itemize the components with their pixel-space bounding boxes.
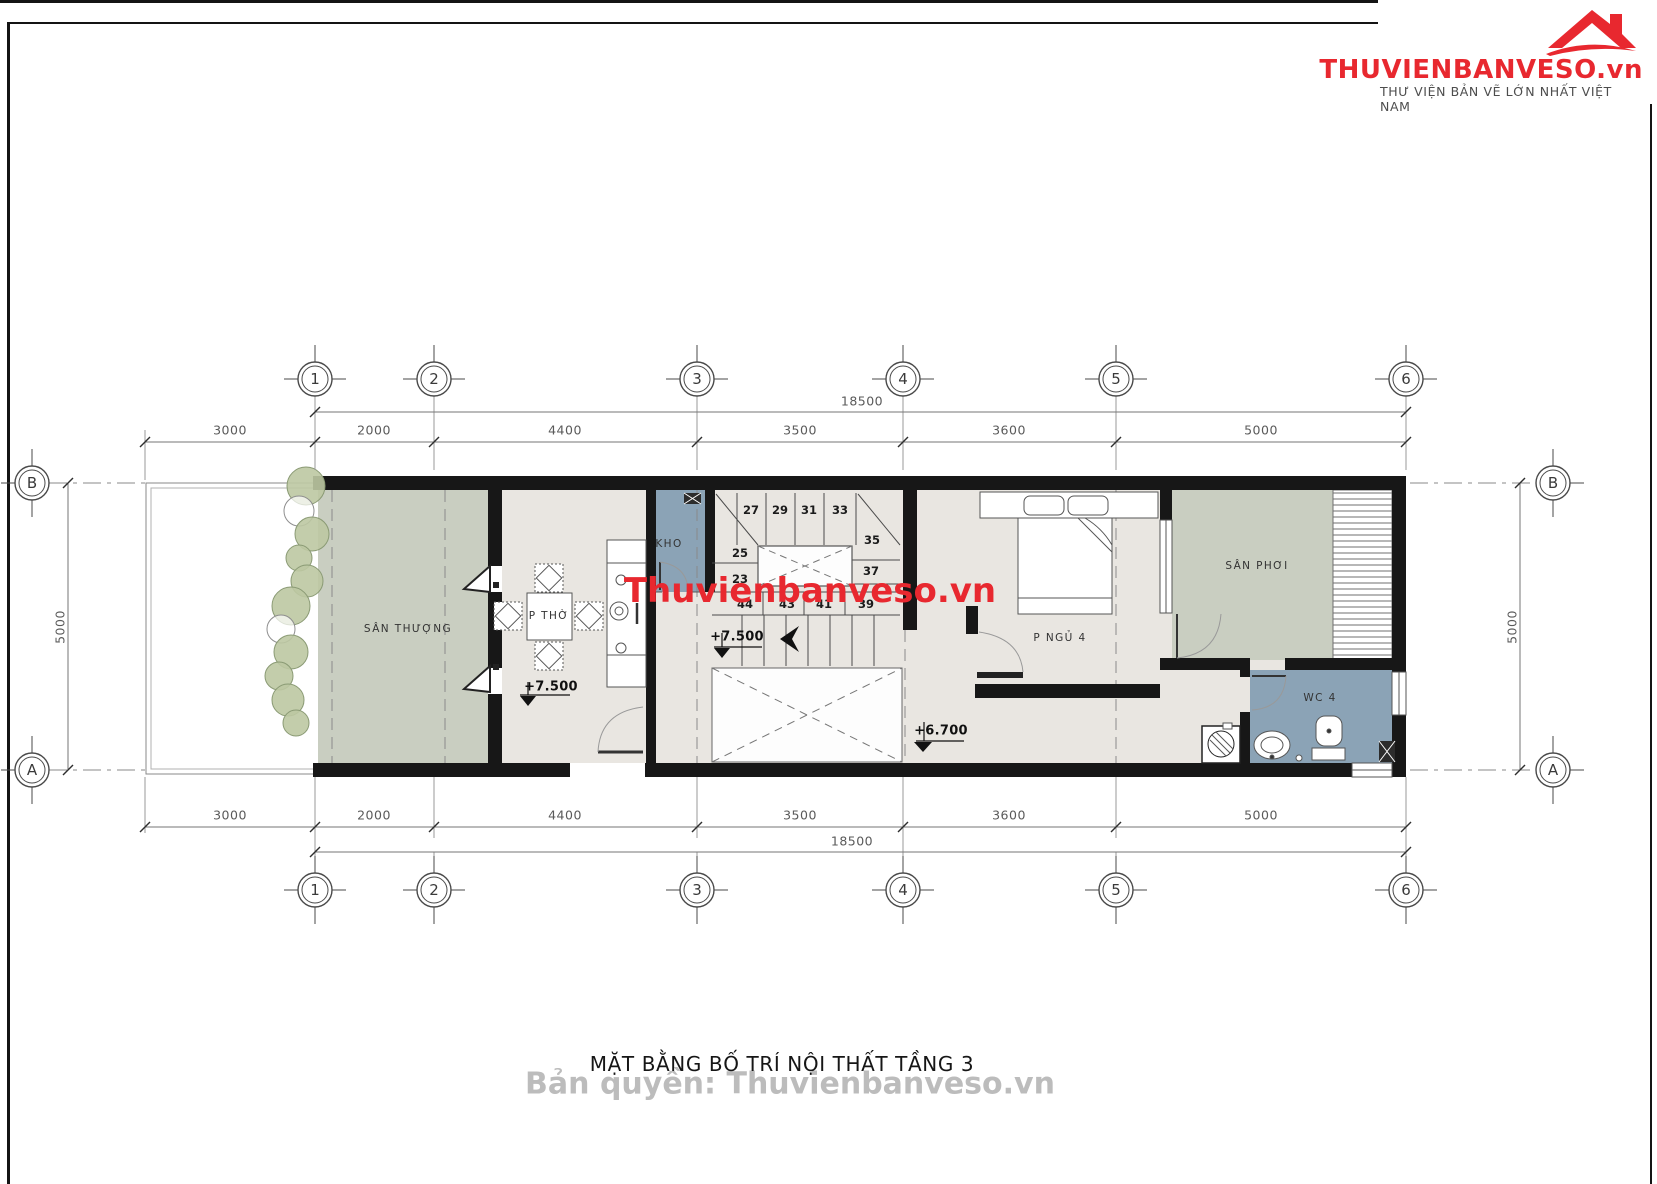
grid-bubble-label: 1 (310, 881, 320, 899)
dim-segment-label: 5000 (1244, 808, 1278, 823)
grid-bubble-label: 4 (898, 881, 908, 899)
dim-segment-label: 2000 (357, 808, 391, 823)
toilet (1312, 716, 1345, 760)
sink (1254, 731, 1290, 759)
dim-segment-label: 4400 (548, 423, 582, 438)
dim-side-label: 5000 (1505, 610, 1520, 644)
stool (535, 642, 563, 670)
center-watermark: Thuvienbanveso.vn (624, 571, 996, 611)
dim-segment-label: 5000 (1244, 423, 1278, 438)
washing-machine (1202, 723, 1240, 763)
level-label-stair: +7.500 (710, 630, 764, 645)
grid-bubble-label: 2 (429, 370, 439, 388)
dim-side-label: 5000 (53, 610, 68, 644)
dim-total-label: 18500 (831, 834, 873, 849)
grid-bubble-label: B (1548, 474, 1558, 492)
drawing-sheet: THUVIENBANVESO.vn THƯ VIỆN BẢN VẼ LỚN NH… (0, 0, 1657, 1184)
room-label-terrace: SÂN THƯỢNG (364, 623, 452, 635)
room-label-wc: WC 4 (1303, 692, 1336, 704)
level-label-worship: +7.500 (524, 680, 578, 695)
room-label-drying: SÂN PHƠI (1225, 560, 1288, 572)
dim-segment-label: 3500 (783, 808, 817, 823)
dim-segment-label: 3500 (783, 423, 817, 438)
stool (535, 564, 563, 592)
dim-segment-label: 2000 (357, 423, 391, 438)
stair-step-number: 35 (864, 533, 880, 547)
stair-step-number: 25 (732, 546, 748, 560)
level-label-hall: +6.700 (914, 724, 968, 739)
dim-segment-label: 3600 (992, 423, 1026, 438)
floor-drain (1296, 755, 1302, 761)
grid-bubble-label: 5 (1111, 881, 1121, 899)
grid-bubble-label: 6 (1401, 881, 1411, 899)
grid-bubble-label: 3 (692, 881, 702, 899)
altar-counter (607, 540, 646, 687)
grid-bubble-label: 3 (692, 370, 702, 388)
stair-step-number: 33 (832, 503, 848, 517)
vent-box-wc (1379, 741, 1395, 762)
stair-step-number: 29 (772, 503, 788, 517)
grid-bubble-label: A (1548, 761, 1558, 779)
grid-bubble-label: B (27, 474, 37, 492)
grid-bubble-label: 6 (1401, 370, 1411, 388)
room-label-storage: KHO (655, 538, 682, 550)
vent-box-kho (684, 493, 701, 504)
stool (575, 602, 603, 630)
dim-total-label: 18500 (841, 394, 883, 409)
drawing-title: MẶT BẰNG BỐ TRÍ NỘI THẤT TẦNG 3 (590, 1052, 974, 1076)
grid-bubble-label: A (27, 761, 37, 779)
grid-bubble-label: 1 (310, 370, 320, 388)
dim-segment-label: 4400 (548, 808, 582, 823)
stool (494, 602, 522, 630)
room-label-worship: P THỜ (529, 610, 570, 622)
stair-step-number: 31 (801, 503, 817, 517)
stair-step-number: 27 (743, 503, 759, 517)
grid-bubble-label: 4 (898, 370, 908, 388)
dim-segment-label: 3000 (213, 423, 247, 438)
room-label-bedroom: P NGỦ 4 (1033, 632, 1086, 644)
dim-segment-label: 3600 (992, 808, 1026, 823)
grid-bubble-label: 5 (1111, 370, 1121, 388)
grid-bubble-label: 2 (429, 881, 439, 899)
dim-segment-label: 3000 (213, 808, 247, 823)
